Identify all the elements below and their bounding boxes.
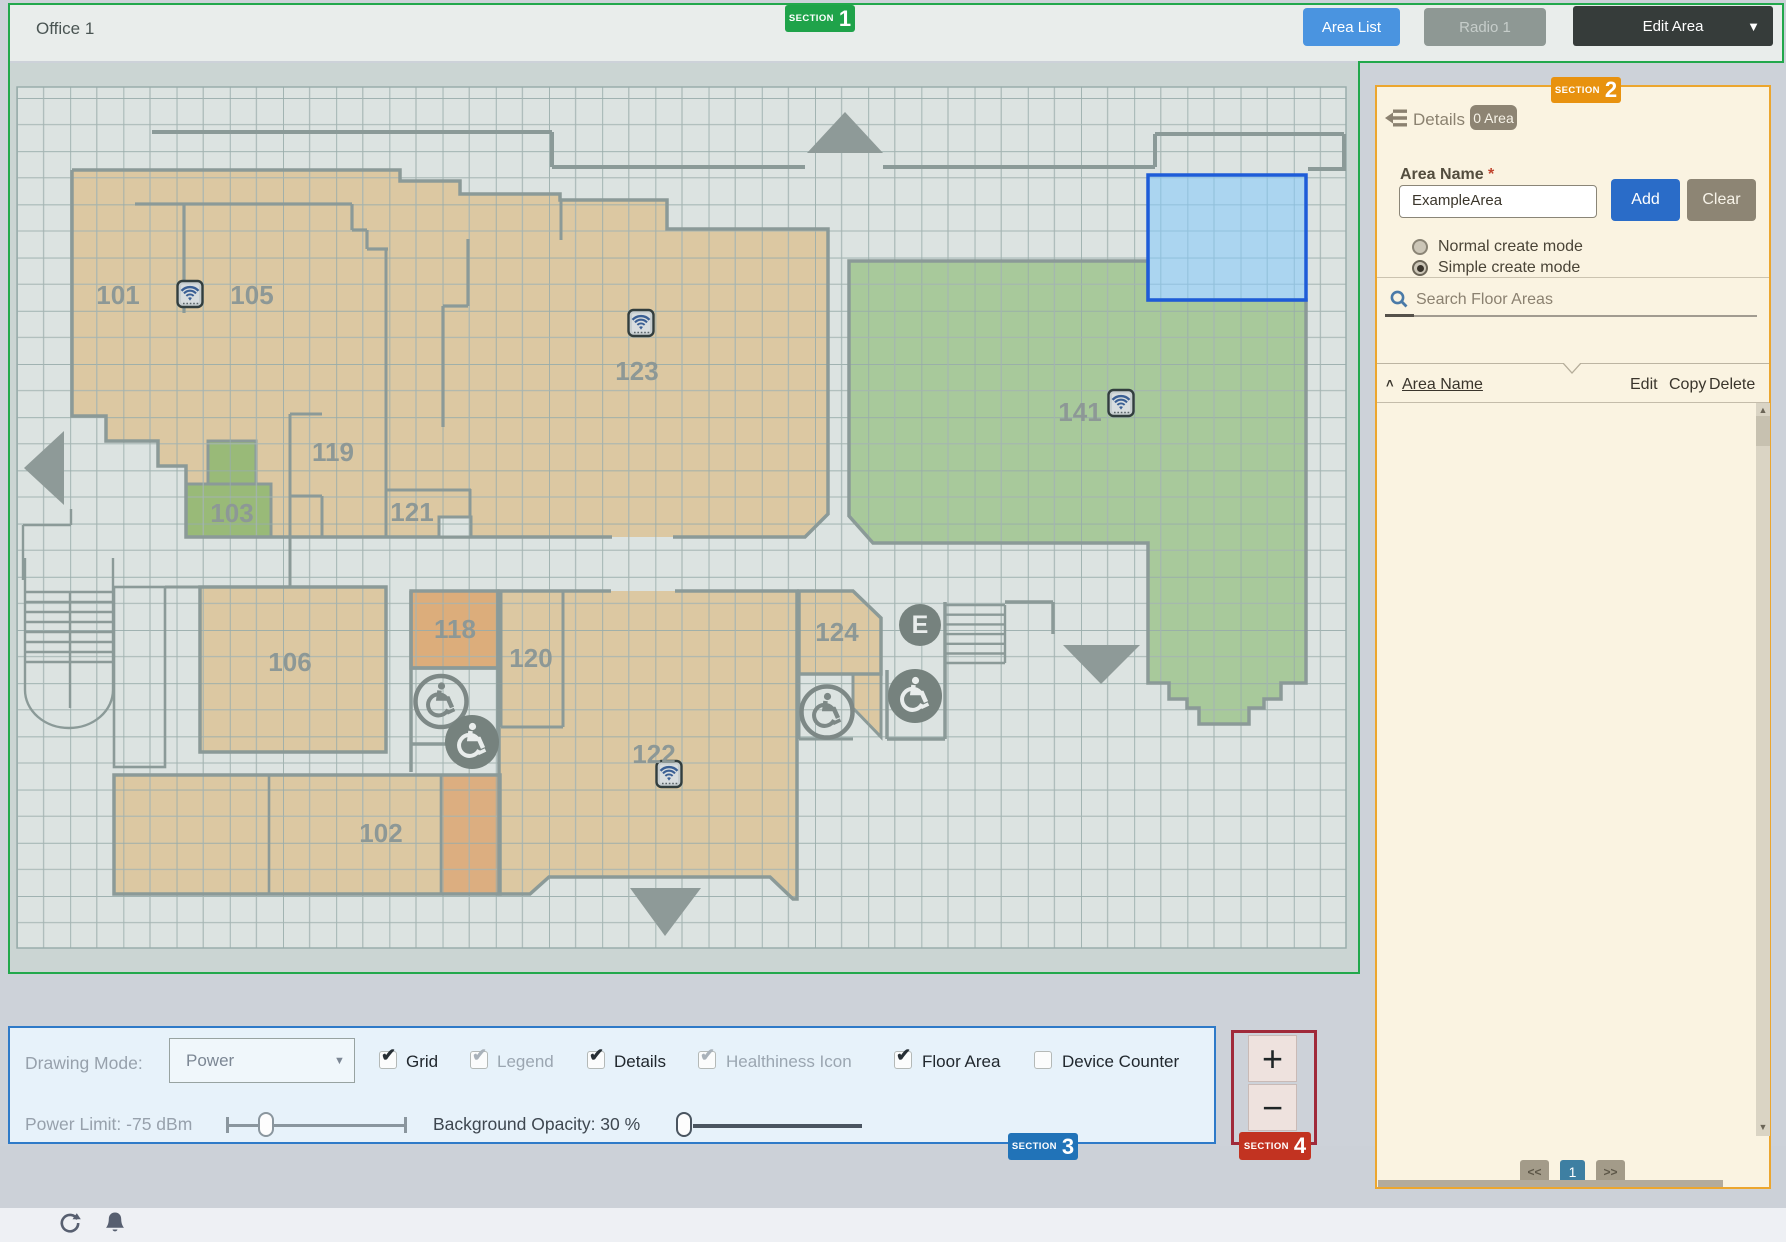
svg-text:121: 121	[390, 497, 433, 527]
svg-text:122: 122	[632, 739, 675, 769]
svg-text:118: 118	[434, 614, 476, 644]
svg-text:119: 119	[312, 437, 354, 467]
svg-text:120: 120	[509, 643, 552, 673]
svg-text:124: 124	[815, 617, 859, 647]
svg-text:141: 141	[1058, 397, 1101, 427]
svg-text:103: 103	[210, 498, 253, 528]
svg-text:105: 105	[230, 280, 273, 310]
svg-text:101: 101	[96, 280, 139, 310]
svg-text:123: 123	[615, 356, 658, 386]
svg-text:106: 106	[268, 647, 311, 677]
svg-text:102: 102	[359, 818, 402, 848]
svg-text:E: E	[912, 611, 929, 639]
